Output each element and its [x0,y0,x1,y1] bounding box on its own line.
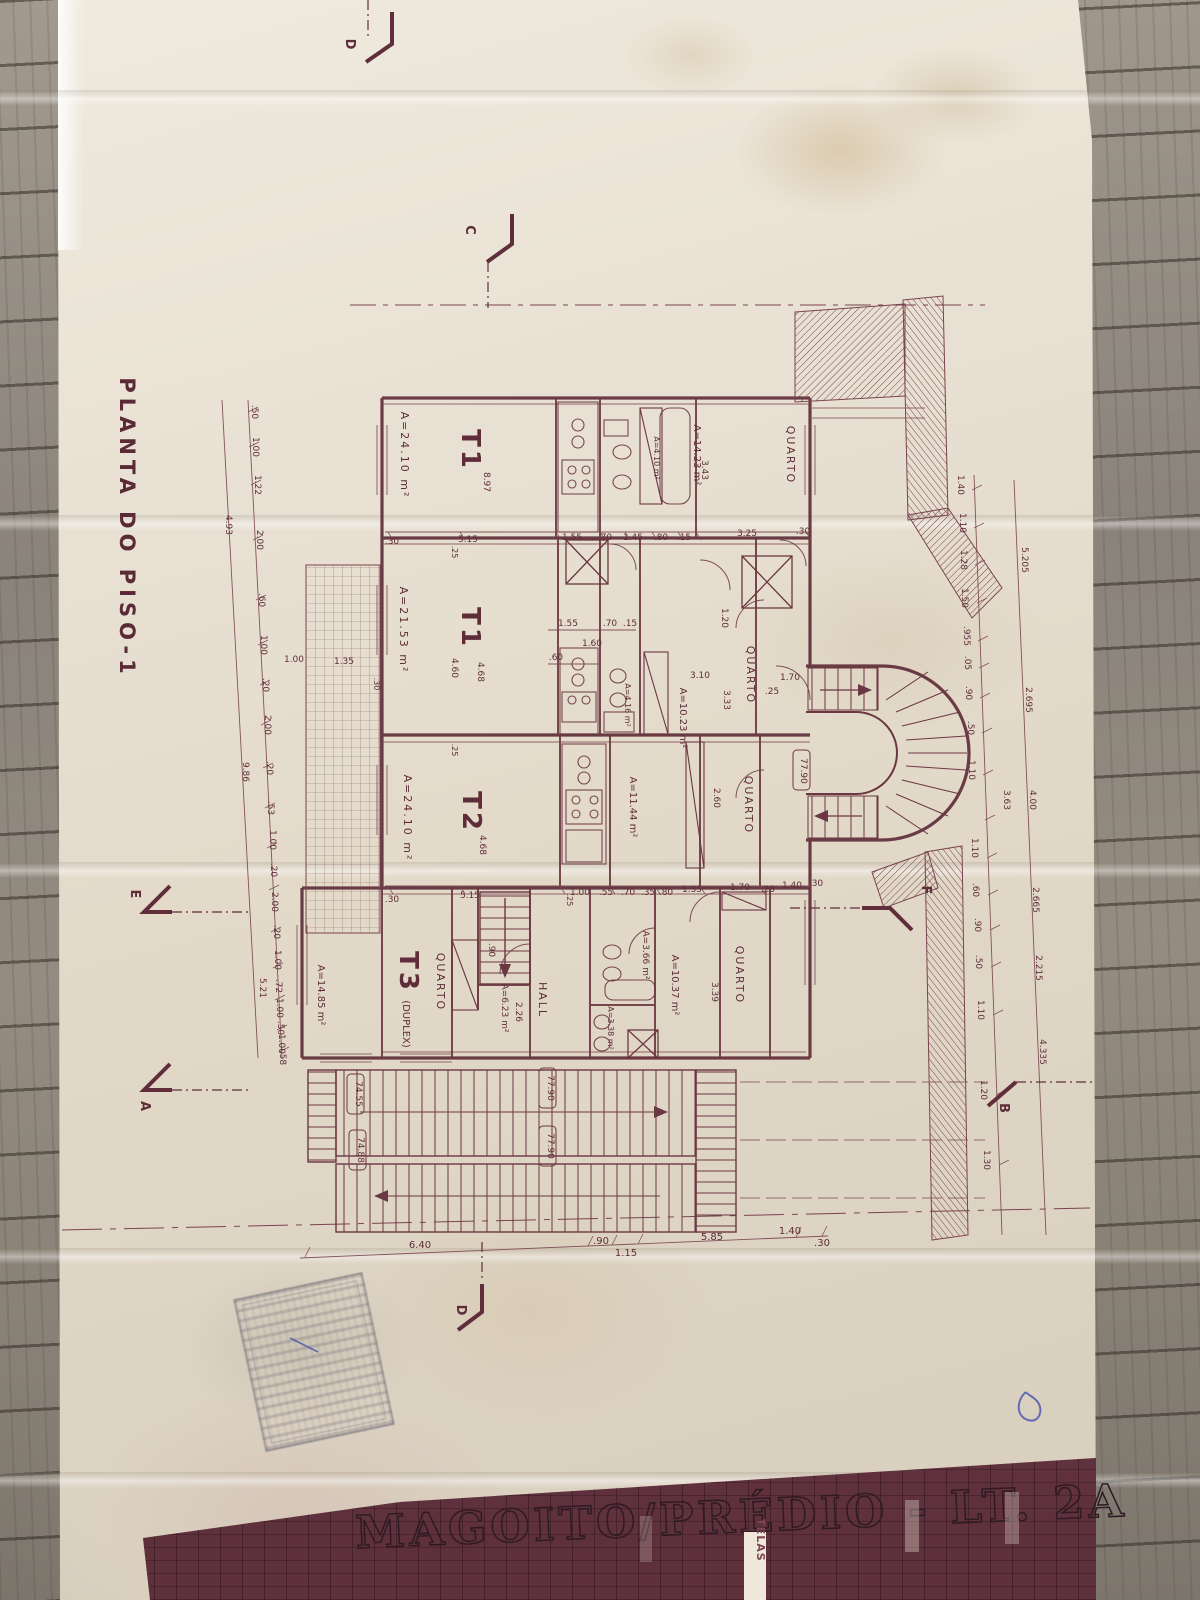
dim-label: .30 [385,895,400,905]
dim-label: .50 [973,955,983,970]
dim-label: 1.50 [959,588,969,608]
dim-label: 2.00 [262,715,272,735]
room-label: HALL [536,982,549,1018]
dim-label: .70 [603,619,618,629]
room-label: QUARTO [744,646,757,704]
dim-label: 1.20 [719,608,729,628]
dim-label: 8.97 [481,472,491,492]
dim-label: 3.25 [737,529,757,539]
room-label: (DUPLEX) [400,1000,411,1048]
room-label: T1 [455,607,485,649]
dim-label: .20 [264,761,274,776]
dim-label: 4.93 [223,515,233,535]
dim-label: 2.215 [1033,955,1043,981]
dim-label: .15 [623,619,637,629]
dim-label: 4.68 [477,835,487,855]
dim-label: 1.22 [252,475,262,495]
dim-label: 1.00 [258,635,268,655]
duplex-stair [480,892,530,984]
section-marker-label: B [996,1103,1011,1113]
dim-label: 1.10 [969,838,979,858]
dim-label: 5.21 [257,978,267,998]
telas-label: TELAS [754,1518,767,1561]
dim-label: .70 [621,888,636,898]
dim-label: .90 [593,1236,609,1247]
dim-label: .50 [249,405,259,420]
dim-label: 2.26 [513,1002,523,1022]
dim-label: 4.335 [1037,1039,1047,1065]
dim-label: .05 [962,656,972,670]
dim-label: .53 [265,801,275,815]
plan-drawing: PLANTA DO PISO-1 T1 A=24.10 m² QUARTO A=… [0,0,1200,1600]
section-marker-label: D [453,1305,468,1316]
dim-label: .30 [814,1238,830,1249]
room-area: A=6.23 m² [499,984,509,1033]
dim-label: 5.205 [1019,547,1029,573]
dim-label: 1.20 [978,1080,988,1100]
level-label: 77.90 [545,1133,555,1159]
dim-label: 1.35 [334,657,354,667]
section-marker-label: A [137,1101,152,1111]
room-area: A=10.37 m² [669,955,680,1016]
level-label: 77.90 [545,1075,555,1101]
dim-label: 5.85 [701,1232,723,1243]
exterior-stairs [308,1070,736,1232]
dim-label: 1.28 [958,550,968,570]
dim-label: .72 [273,979,283,993]
room-label: T1 [455,429,485,471]
dim-label: .80 [659,888,674,898]
room-area: A=4.16 m² [623,683,632,727]
dim-label: .30 [796,527,811,537]
dim-label: 1.40 [782,881,802,891]
section-marker-label: F [918,886,933,895]
dim-label: 2.00 [254,530,264,550]
dim-label: 2.60 [711,788,721,808]
dim-label: 2.695 [1023,687,1033,713]
dim-label: 1.00 [284,655,304,665]
room-label: T3 [393,951,423,993]
dim-label: 4.68 [475,662,485,682]
dim-label: 1.40 [779,1226,801,1237]
dim-label: .15 [677,533,691,543]
plan-title: PLANTA DO PISO-1 [115,377,139,678]
dim-label: .90 [972,918,982,933]
dim-label: 1.70 [730,883,750,893]
dim-label: 1.10 [957,513,967,533]
dim-label: .20 [260,678,270,693]
dim-label: 3.43 [699,460,709,480]
dim-label: .20 [271,925,281,940]
handwritten-mark [290,1338,1040,1421]
dim-label: .90 [963,686,973,701]
dim-label: .20 [268,863,278,878]
room-label: T2 [456,791,486,833]
section-marker-label: D [342,39,357,50]
dim-label: 1.70 [780,673,800,683]
dim-label: .25 [450,546,459,559]
dim-label: .35 [641,888,655,898]
dim-label: 4.60 [449,658,459,678]
dim-label: .955 [961,626,971,646]
dim-label: 3.33 [721,690,731,710]
dim-label: 5.15 [458,535,478,545]
dim-label: .58 [277,1051,287,1066]
dim-label: .50 [965,721,975,736]
title-block: MAGOITO/PRÉDIO - LT. 2A TELAS [354,1474,1128,1600]
room-area: A=21.53 m² [397,587,410,674]
dim-label: 3.63 [1001,790,1011,810]
dim-label: .60 [970,883,980,898]
dim-label: .25 [565,894,574,907]
room-area: A=3.38 m² [606,1006,615,1050]
room-area: A=10.23 m² [677,688,688,749]
dim-label: 1.00 [250,437,260,457]
dim-label: .25 [761,885,775,895]
dim-label: 4.00 [1027,790,1037,810]
dim-label: .60 [549,653,564,663]
dim-label: .30 [385,537,400,547]
room-area: A=3.66 m² [640,931,650,980]
level-label: 74.88 [355,1137,365,1163]
room-label: QUARTO [742,776,755,834]
room-area: A=11.44 m² [627,777,638,838]
dim-label: .80 [654,533,669,543]
dim-label: 2.665 [1030,887,1040,913]
dim-label: 1.45 [623,533,643,543]
room-label: QUARTO [733,946,746,1004]
dim-label: .30 [809,879,824,889]
dim-label: 1.10 [966,760,976,780]
dim-label: 1.30 [981,1150,991,1170]
dim-label: 1.10 [975,1000,985,1020]
dim-label: 1.00 [272,950,282,970]
dim-label: 3.39 [709,982,719,1002]
photo-of-floorplan: PLANTA DO PISO-1 T1 A=24.10 m² QUARTO A=… [0,0,1200,1600]
dim-label: 5.15 [460,891,480,901]
dim-label: 1.60 [582,639,602,649]
dim-label: 1.55 [558,619,578,629]
dim-label: 3.10 [690,671,710,681]
dim-label: 1.40 [955,475,965,495]
level-label: 74.55 [353,1081,363,1107]
dim-label: 1.00 [267,830,277,850]
curved-stair [806,668,967,838]
dim-label: .25 [450,744,459,757]
dim-label: 9.86 [240,762,250,782]
dim-label: 6.40 [409,1240,431,1251]
room-label: QUARTO [434,953,447,1011]
room-area: A=24.10 m² [398,412,411,499]
dim-label: 2.00 [269,892,279,912]
room-area: A=4.10 m² [652,436,661,480]
dim-label: .90 [486,943,496,958]
dim-label: 1.15 [615,1248,637,1259]
section-marker-label: C [462,225,477,235]
room-label: QUARTO [784,426,797,484]
section-marker-label: E [127,890,142,899]
dim-label: .25 [765,687,779,697]
room-area: A=14.85 m² [315,965,326,1026]
dim-label: 1.35 [682,885,702,895]
dim-label: .70 [598,533,613,543]
dim-label: .60 [256,593,266,608]
dim-label: 1.55 [562,533,582,543]
dim-label: 1.00 [274,998,284,1018]
level-label: 77.90 [798,758,808,784]
dim-label: .30 [372,678,381,691]
dim-label: .55 [599,888,613,898]
room-area: A=24.10 m² [401,775,414,862]
